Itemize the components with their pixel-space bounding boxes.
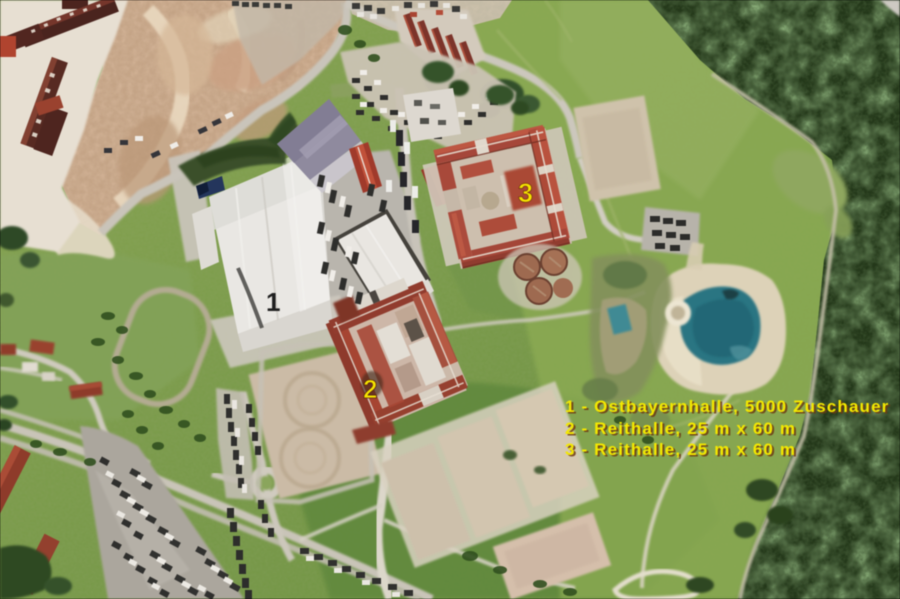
svg-text:2: 2: [363, 374, 377, 404]
svg-text:1: 1: [266, 287, 280, 317]
svg-text:3 - Reithalle, 25 m x 60 m: 3 - Reithalle, 25 m x 60 m: [565, 440, 796, 459]
svg-text:3: 3: [518, 178, 533, 208]
svg-text:1 - Ostbayernhalle, 5000 Zusch: 1 - Ostbayernhalle, 5000 Zuschauer: [565, 397, 889, 416]
svg-text:2 - Reithalle, 25 m x 60 m: 2 - Reithalle, 25 m x 60 m: [565, 419, 796, 438]
